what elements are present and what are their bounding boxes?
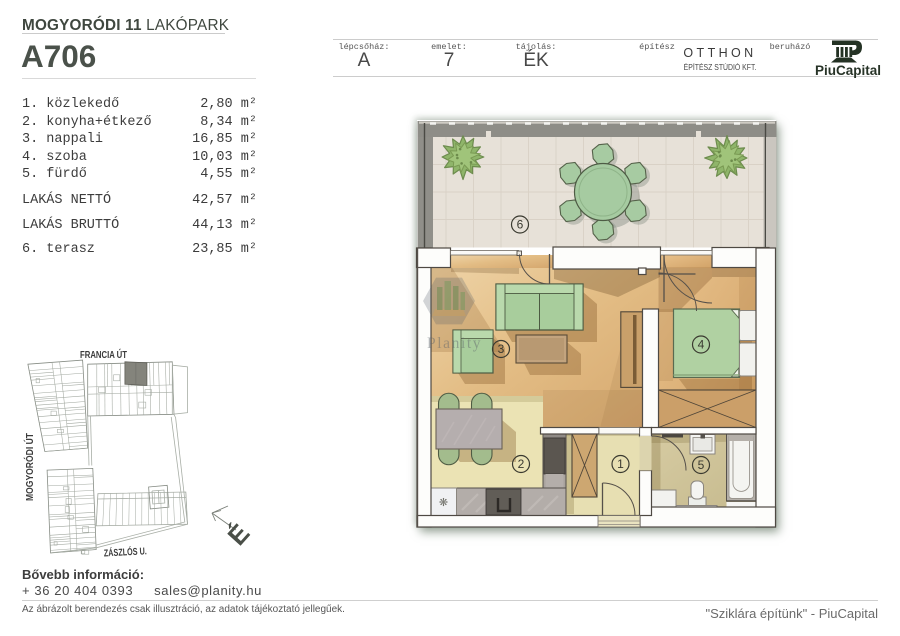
svg-text:1: 1 — [617, 457, 624, 471]
svg-text:Planity: Planity — [427, 335, 482, 352]
svg-text:3: 3 — [498, 342, 505, 356]
svg-text:FRANCIA ÚT: FRANCIA ÚT — [80, 348, 127, 361]
svg-text:ZÁSZLÓS U.: ZÁSZLÓS U. — [103, 544, 147, 559]
svg-text:4: 4 — [698, 338, 705, 352]
svg-text:MOGYORÓDI ÚT: MOGYORÓDI ÚT — [23, 433, 36, 501]
svg-text:5: 5 — [698, 458, 705, 472]
svg-text:2: 2 — [518, 457, 525, 471]
svg-text:6: 6 — [517, 218, 524, 232]
svg-text:❋: ❋ — [439, 497, 448, 509]
